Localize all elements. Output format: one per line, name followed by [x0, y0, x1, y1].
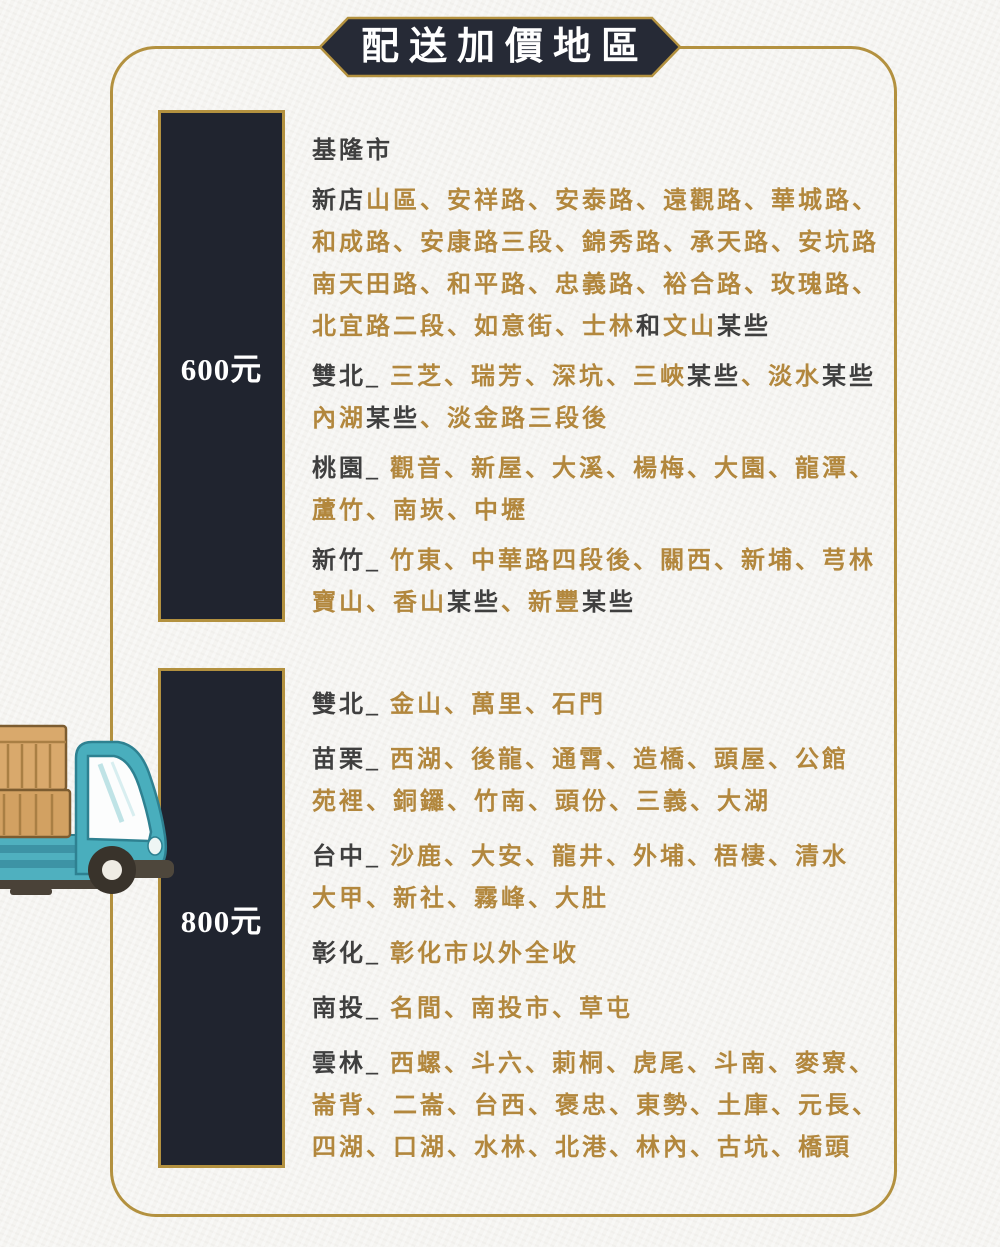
- region-line: 雙北_ 三芝、瑞芳、深坑、三峽某些、淡水某些: [312, 356, 887, 398]
- region-line: 雲林_ 西螺、斗六、莿桐、虎尾、斗南、麥寮、: [312, 1043, 887, 1085]
- region-text: 、淡水: [741, 364, 822, 390]
- region-line: 內湖某些、淡金路三段後: [312, 398, 887, 440]
- region-text: 某些: [447, 590, 501, 616]
- region-line: 崙背、二崙、台西、褒忠、東勢、土庫、元長、: [312, 1085, 887, 1127]
- region-text: 文山: [663, 314, 717, 340]
- region-line: 蘆竹、南崁、中壢: [312, 490, 887, 532]
- region-text: 山區、安祥路、安泰路、遠觀路、華城路、: [366, 188, 879, 214]
- region-line: 台中_ 沙鹿、大安、龍井、外埔、梧棲、清水: [312, 836, 887, 878]
- title-banner: 配送加價地區: [318, 16, 682, 78]
- region-line: 彰化_ 彰化市以外全收: [312, 933, 887, 975]
- region-line: 大甲、新社、霧峰、大肚: [312, 878, 887, 920]
- price-bar-600: 600元: [158, 110, 285, 622]
- region-line: 苑裡、銅鑼、竹南、頭份、三義、大湖: [312, 781, 887, 823]
- price-label-600: 600元: [181, 344, 263, 389]
- region-text: 四湖、口湖、水林、北港、林內、古坑、橋頭: [312, 1135, 852, 1161]
- region-paragraph: 雲林_ 西螺、斗六、莿桐、虎尾、斗南、麥寮、崙背、二崙、台西、褒忠、東勢、土庫、…: [312, 1043, 887, 1169]
- region-text: 大甲、新社、霧峰、大肚: [312, 886, 609, 912]
- region-text: 蘆竹、南崁、中壢: [312, 498, 528, 524]
- region-paragraph: 台中_ 沙鹿、大安、龍井、外埔、梧棲、清水大甲、新社、霧峰、大肚: [312, 836, 887, 920]
- region-text: 台中_: [312, 844, 390, 870]
- region-line: 南投_ 名間、南投市、草屯: [312, 988, 887, 1030]
- region-text: 、淡金路三段後: [420, 406, 609, 432]
- region-line: 基隆市: [312, 130, 887, 172]
- region-text: 基隆市: [312, 138, 393, 164]
- region-text: 西湖、後龍、通霄、造橋、頭屋、公館: [390, 747, 849, 773]
- region-paragraph: 桃園_ 觀音、新屋、大溪、楊梅、大園、龍潭、蘆竹、南崁、中壢: [312, 448, 887, 532]
- region-text: 某些: [582, 590, 636, 616]
- region-paragraph: 雙北_ 金山、萬里、石門: [312, 684, 887, 726]
- region-text: 和: [636, 314, 663, 340]
- region-text: 雲林_: [312, 1051, 390, 1077]
- region-line: 新店山區、安祥路、安泰路、遠觀路、華城路、: [312, 180, 887, 222]
- region-text: 竹東、中華路四段後、關西、新埔、芎林: [390, 548, 876, 574]
- region-text: 某些: [687, 364, 741, 390]
- region-paragraph: 新店山區、安祥路、安泰路、遠觀路、華城路、和成路、安康路三段、錦秀路、承天路、安…: [312, 180, 887, 348]
- region-line: 雙北_ 金山、萬里、石門: [312, 684, 887, 726]
- delivery-truck-icon: [0, 712, 178, 912]
- region-text: 某些: [822, 364, 876, 390]
- region-list-600: 基隆市新店山區、安祥路、安泰路、遠觀路、華城路、和成路、安康路三段、錦秀路、承天…: [312, 130, 887, 632]
- region-list-800: 雙北_ 金山、萬里、石門苗栗_ 西湖、後龍、通霄、造橋、頭屋、公館苑裡、銅鑼、竹…: [312, 684, 887, 1182]
- region-text: 崙背、二崙、台西、褒忠、東勢、土庫、元長、: [312, 1093, 879, 1119]
- region-text: 雙北_: [312, 692, 390, 718]
- region-line: 和成路、安康路三段、錦秀路、承天路、安坑路: [312, 222, 887, 264]
- region-text: 彰化市以外全收: [390, 941, 579, 967]
- region-text: 苗栗_: [312, 747, 390, 773]
- region-text: 某些: [366, 406, 420, 432]
- region-text: 名間、南投市、草屯: [390, 996, 633, 1022]
- region-text: 內湖: [312, 406, 366, 432]
- region-text: 觀音、新屋、大溪、楊梅、大園、龍潭、: [390, 456, 876, 482]
- region-text: 某些: [717, 314, 771, 340]
- region-text: 南投_: [312, 996, 390, 1022]
- region-text: 彰化_: [312, 941, 390, 967]
- region-text: 沙鹿、大安、龍井、外埔、梧棲、清水: [390, 844, 849, 870]
- region-line: 桃園_ 觀音、新屋、大溪、楊梅、大園、龍潭、: [312, 448, 887, 490]
- region-text: 新竹_: [312, 548, 390, 574]
- region-line: 苗栗_ 西湖、後龍、通霄、造橋、頭屋、公館: [312, 739, 887, 781]
- region-paragraph: 新竹_ 竹東、中華路四段後、關西、新埔、芎林寶山、香山某些、新豐某些: [312, 540, 887, 624]
- region-paragraph: 苗栗_ 西湖、後龍、通霄、造橋、頭屋、公館苑裡、銅鑼、竹南、頭份、三義、大湖: [312, 739, 887, 823]
- region-paragraph: 南投_ 名間、南投市、草屯: [312, 988, 887, 1030]
- page-title: 配送加價地區: [318, 16, 682, 78]
- region-text: 苑裡、銅鑼、竹南、頭份、三義、大湖: [312, 789, 771, 815]
- region-text: 北宜路二段、如意街、士林: [312, 314, 636, 340]
- region-text: 金山、萬里、石門: [390, 692, 606, 718]
- region-text: 新店: [312, 188, 366, 214]
- region-line: 寶山、香山某些、新豐某些: [312, 582, 887, 624]
- region-line: 南天田路、和平路、忠義路、裕合路、玫瑰路、: [312, 264, 887, 306]
- region-text: 南天田路、和平路、忠義路、裕合路、玫瑰路、: [312, 272, 879, 298]
- region-paragraph: 基隆市: [312, 130, 887, 172]
- region-line: 四湖、口湖、水林、北港、林內、古坑、橋頭: [312, 1127, 887, 1169]
- price-label-800: 800元: [181, 896, 263, 941]
- region-text: 寶山、香山: [312, 590, 447, 616]
- region-line: 北宜路二段、如意街、士林和文山某些: [312, 306, 887, 348]
- region-text: 西螺、斗六、莿桐、虎尾、斗南、麥寮、: [390, 1051, 876, 1077]
- region-text: 和成路、安康路三段、錦秀路、承天路、安坑路: [312, 230, 879, 256]
- region-text: 、新豐: [501, 590, 582, 616]
- region-text: 雙北_: [312, 364, 390, 390]
- region-paragraph: 雙北_ 三芝、瑞芳、深坑、三峽某些、淡水某些內湖某些、淡金路三段後: [312, 356, 887, 440]
- region-text: 三芝、瑞芳、深坑、三峽: [390, 364, 687, 390]
- region-line: 新竹_ 竹東、中華路四段後、關西、新埔、芎林: [312, 540, 887, 582]
- region-text: 桃園_: [312, 456, 390, 482]
- region-paragraph: 彰化_ 彰化市以外全收: [312, 933, 887, 975]
